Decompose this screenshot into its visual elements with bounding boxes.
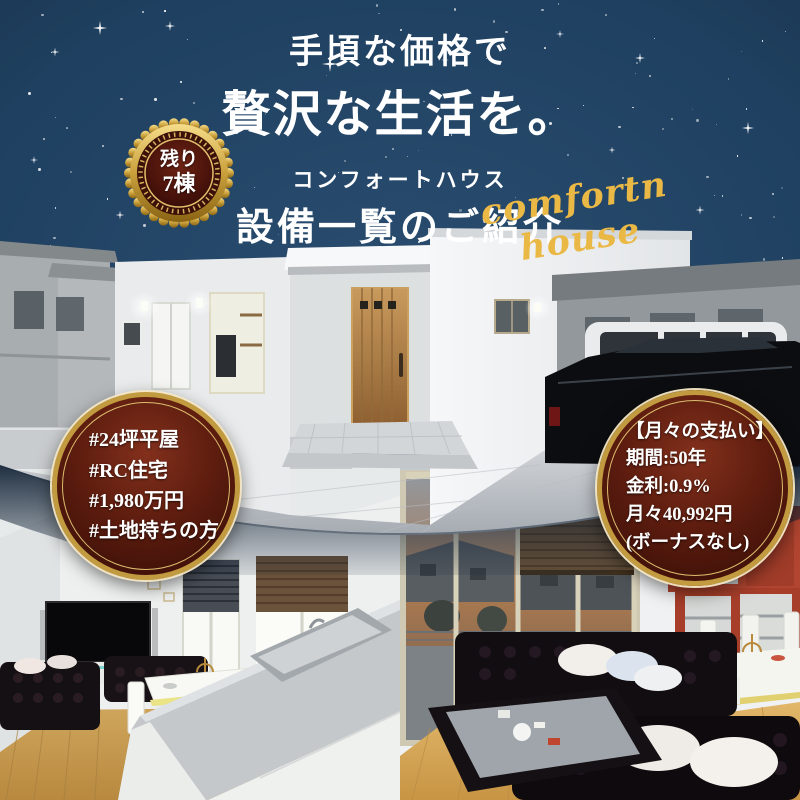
payment-line: 月々40,992円 (626, 502, 788, 530)
payment-line: (ボーナスなし) (626, 530, 788, 558)
feature-line: #土地持ちの方 (89, 516, 235, 546)
feature-line: #24坪平屋 (89, 425, 235, 455)
property-features-badge: #24坪平屋 #RC住宅 #1,980万円 #土地持ちの方 (52, 392, 240, 580)
property-features-lines: #24坪平屋 #RC住宅 #1,980万円 #土地持ちの方 (57, 397, 235, 575)
payment-line: 金利:0.9% (626, 474, 788, 502)
payment-line: 【月々の支払い】 (626, 419, 788, 447)
catchphrase-line1: 手頃な価格で (0, 24, 800, 73)
poster-canvas: 手頃な価格で 贅沢な生活を。 コンフォートハウス 設備一覧のご紹介 comfor… (0, 0, 800, 800)
medallion-line1: 残り (160, 149, 198, 171)
medallion-line2: 7棟 (162, 171, 195, 196)
payment-line: 期間:50年 (626, 446, 788, 474)
medallion-text: 残り 7棟 (122, 116, 236, 230)
remaining-units-medallion: 残り 7棟 (122, 116, 236, 230)
catchphrase-line2: 贅沢な生活を。 (0, 75, 800, 146)
feature-line: #1,980万円 (89, 486, 235, 516)
feature-line: #RC住宅 (89, 456, 235, 486)
monthly-payment-lines: 【月々の支払い】 期間:50年 金利:0.9% 月々40,992円 (ボーナスな… (602, 395, 788, 581)
monthly-payment-badge: 【月々の支払い】 期間:50年 金利:0.9% 月々40,992円 (ボーナスな… (597, 390, 793, 586)
